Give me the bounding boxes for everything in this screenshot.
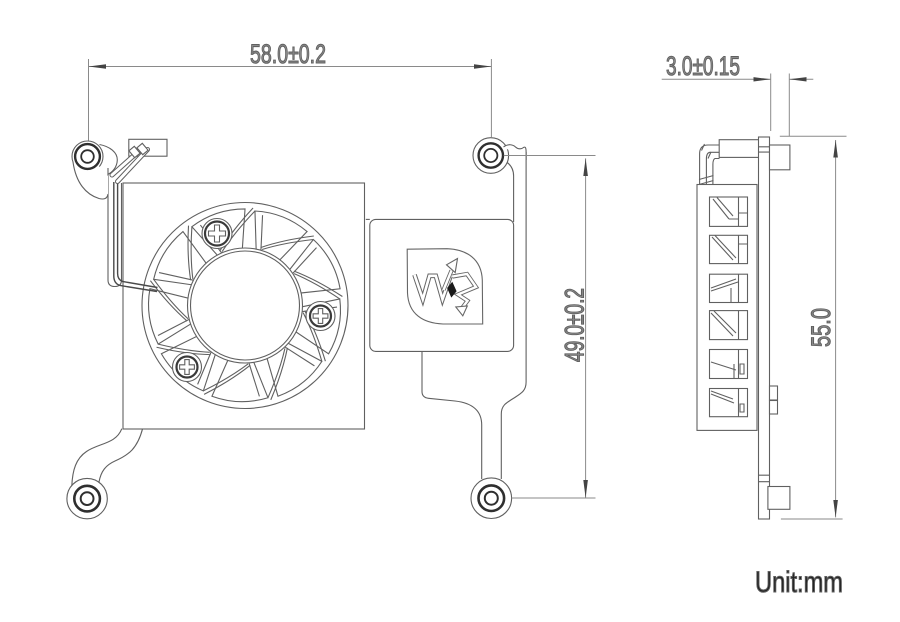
svg-text:58.0±0.2: 58.0±0.2 (250, 39, 326, 69)
svg-text:55.0: 55.0 (806, 308, 836, 347)
svg-text:49.0±0.2: 49.0±0.2 (560, 288, 590, 362)
svg-text:3.0±0.15: 3.0±0.15 (666, 51, 740, 81)
svg-text:Unit:mm: Unit:mm (755, 566, 843, 599)
